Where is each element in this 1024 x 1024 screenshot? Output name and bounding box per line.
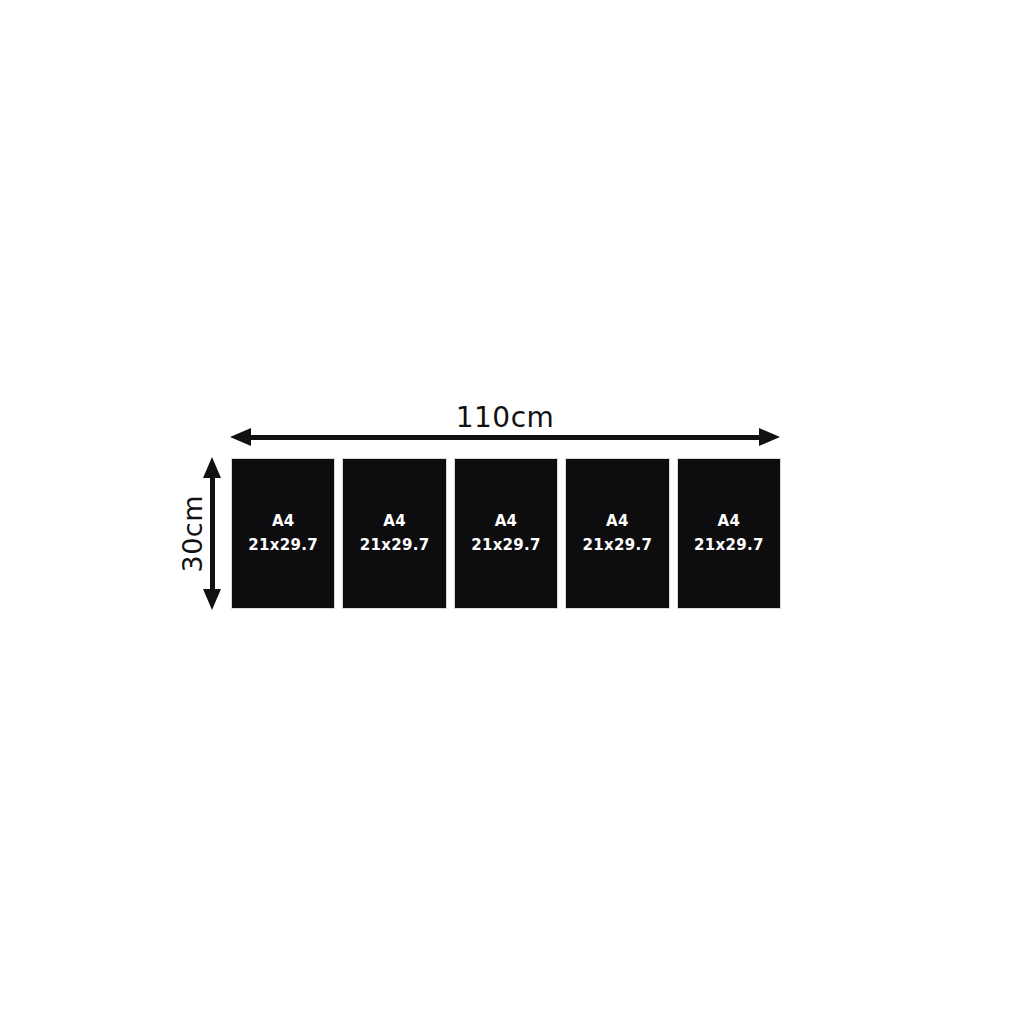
panel-name: A4 — [383, 514, 406, 529]
panel-size: 21x29.7 — [248, 538, 318, 553]
panel: A4 21x29.7 — [342, 458, 446, 609]
height-dimension-arrow — [203, 457, 221, 610]
panel: A4 21x29.7 — [231, 458, 335, 609]
panel-name: A4 — [495, 514, 518, 529]
panel-size: 21x29.7 — [360, 538, 430, 553]
panel: A4 21x29.7 — [454, 458, 558, 609]
height-dimension-label-wrap: 30cm — [178, 458, 206, 609]
arrow-down-head-icon — [203, 589, 221, 610]
panel: A4 21x29.7 — [565, 458, 669, 609]
arrow-line — [245, 435, 765, 440]
panel-size: 21x29.7 — [694, 538, 764, 553]
panel: A4 21x29.7 — [677, 458, 781, 609]
panel-size: 21x29.7 — [583, 538, 653, 553]
arrow-right-head-icon — [759, 428, 780, 446]
panel-size: 21x29.7 — [471, 538, 541, 553]
panel-row: A4 21x29.7 A4 21x29.7 A4 21x29.7 A4 21x2… — [231, 458, 781, 609]
panel-name: A4 — [718, 514, 741, 529]
diagram-canvas: 110cm 30cm A4 21x29.7 A4 21x29.7 A4 21x2… — [0, 0, 1024, 1024]
panel-name: A4 — [606, 514, 629, 529]
width-dimension-arrow — [230, 428, 780, 446]
arrow-line — [210, 472, 215, 595]
panel-name: A4 — [272, 514, 295, 529]
